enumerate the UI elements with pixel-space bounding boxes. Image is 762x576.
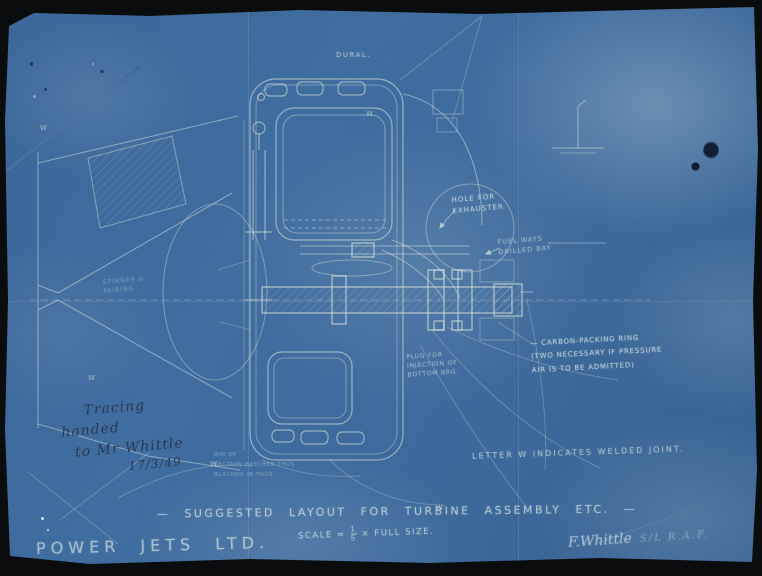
scale-prefix: SCALE =: [298, 528, 346, 542]
weld-mark: W: [40, 124, 47, 132]
annotation-carbon-packing-ring: — CARBON-PACKING RING (TWO NECESSARY IF …: [530, 331, 663, 378]
annotation-plug: PLUG FOR INJECTION OF BOTTOM BRG.: [406, 349, 459, 380]
scale-fraction: 1 5: [350, 526, 357, 542]
scale-suffix: × FULL SIZE.: [361, 525, 434, 540]
weld-mark: W: [88, 374, 95, 382]
blueprint-sheet: W W W W W DURAL. HOLE FOR EXHAUSTER FUEL…: [0, 0, 762, 576]
scale-denominator: 5: [351, 533, 357, 542]
weld-mark: W: [366, 110, 373, 118]
signature-suffix: S/L R.A.F.: [640, 529, 710, 545]
pencil-note: Tracing handed to Mr Whittle 17/3/49: [49, 392, 186, 481]
blueprint-photo: W W W W W DURAL. HOLE FOR EXHAUSTER FUEL…: [0, 0, 762, 576]
annotation-rim-section-note: RIM OF SECTION HATCHED THUS BLACKED IN T…: [214, 451, 295, 481]
annotation-hole-for-exhauster: HOLE FOR EXHAUSTER: [451, 191, 504, 216]
signature-name: F.Whittle: [568, 531, 633, 551]
annotation-dural: DURAL.: [336, 50, 371, 61]
annotation-spinner-fairing: SPINNER & FAIRING: [102, 274, 145, 296]
